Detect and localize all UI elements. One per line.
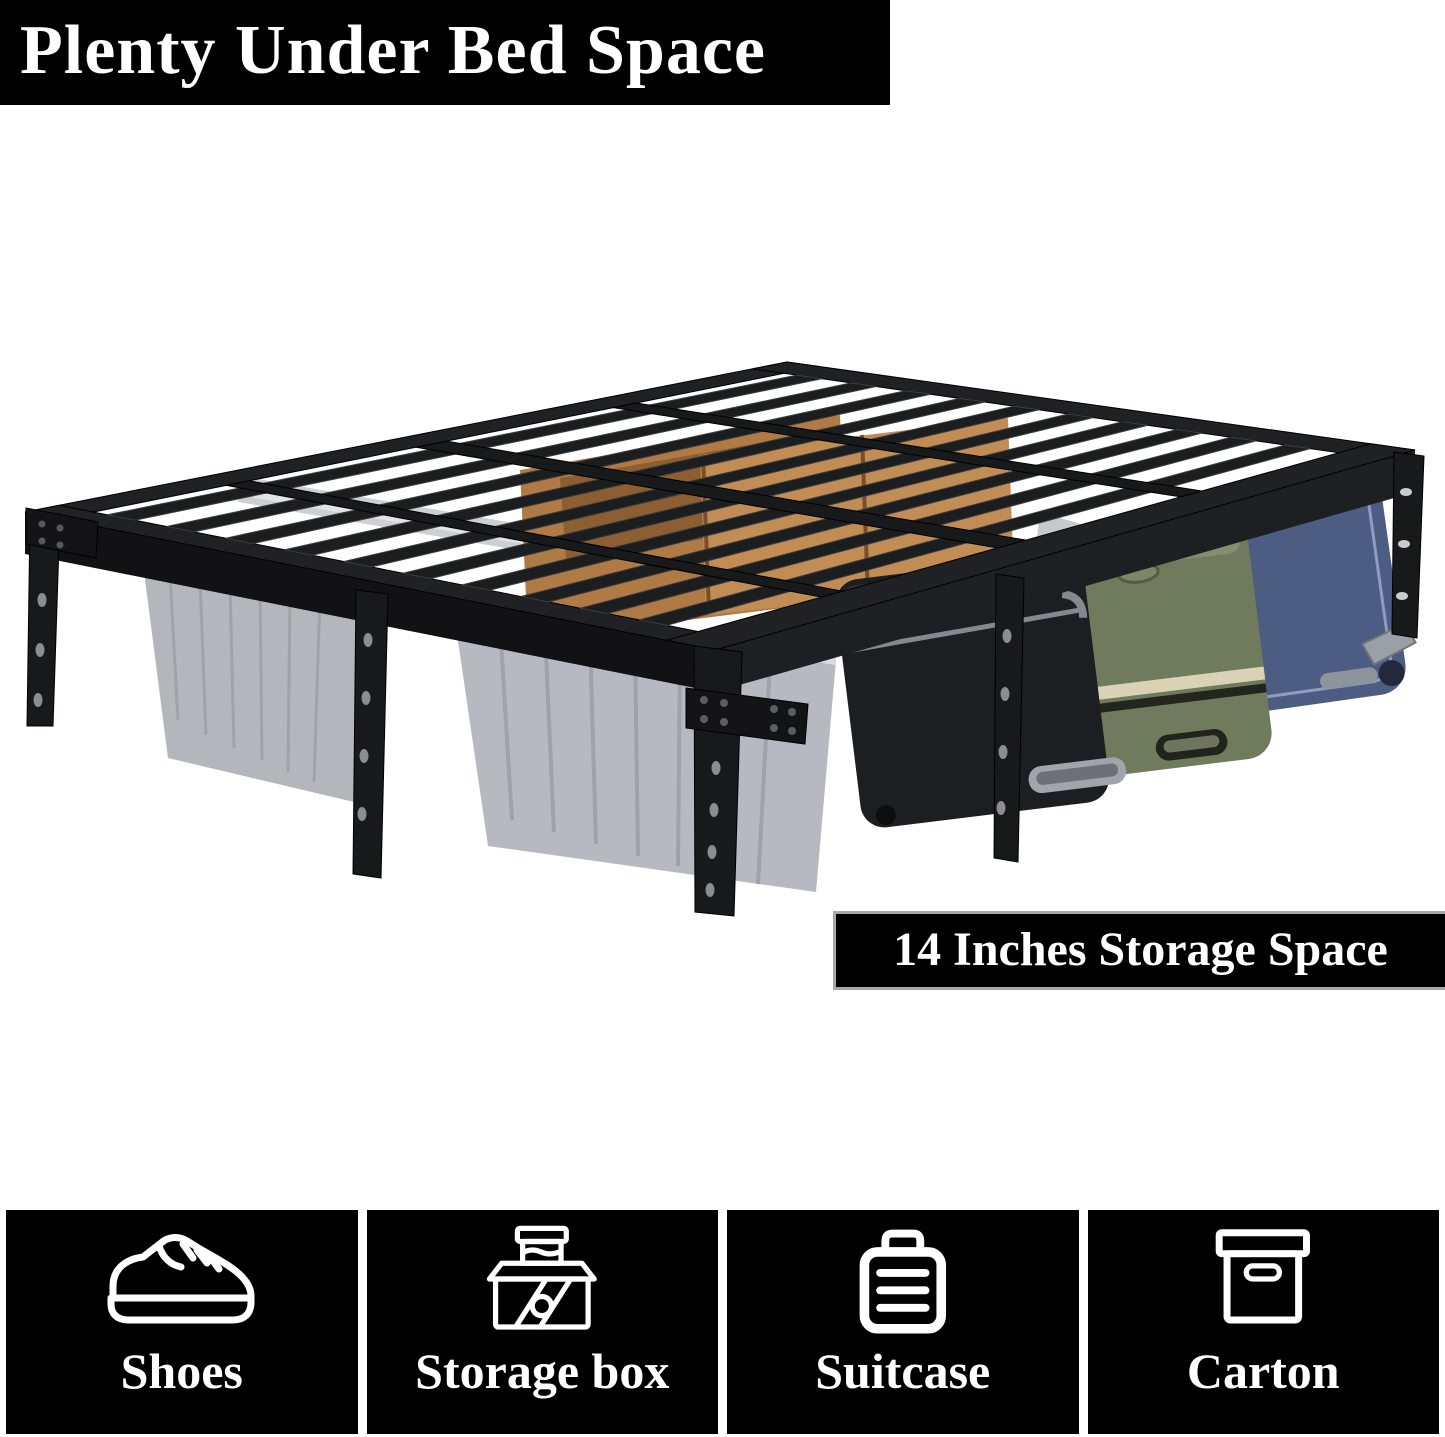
headline-banner: Plenty Under Bed Space <box>0 0 890 105</box>
storage-height-banner: 14 Inches Storage Space <box>833 911 1445 990</box>
shoe-icon <box>97 1224 267 1334</box>
storage-height-text: 14 Inches Storage Space <box>893 923 1388 976</box>
storage-box-icon <box>472 1224 612 1334</box>
carton-icon <box>1193 1224 1333 1334</box>
left-corner-leg <box>26 508 98 726</box>
feature-tile-storage-box: Storage box <box>367 1210 719 1434</box>
tile-label: Carton <box>1187 1342 1340 1400</box>
tile-label: Suitcase <box>815 1342 990 1400</box>
suitcase-icon <box>833 1224 973 1334</box>
tile-label: Storage box <box>415 1342 669 1400</box>
headline-text: Plenty Under Bed Space <box>20 12 766 89</box>
mid-right-leg <box>994 574 1024 862</box>
right-corner-leg <box>1392 452 1424 638</box>
feature-tile-suitcase: Suitcase <box>727 1210 1079 1434</box>
tile-label: Shoes <box>121 1342 243 1400</box>
product-image: Plenty Under Bed Space 14 Inches Storage… <box>0 0 1445 1437</box>
feature-tile-carton: Carton <box>1088 1210 1440 1434</box>
feature-tile-shoes: Shoes <box>6 1210 358 1434</box>
mid-left-leg <box>353 590 388 878</box>
feature-tiles: Shoes Storage box <box>0 1210 1445 1434</box>
